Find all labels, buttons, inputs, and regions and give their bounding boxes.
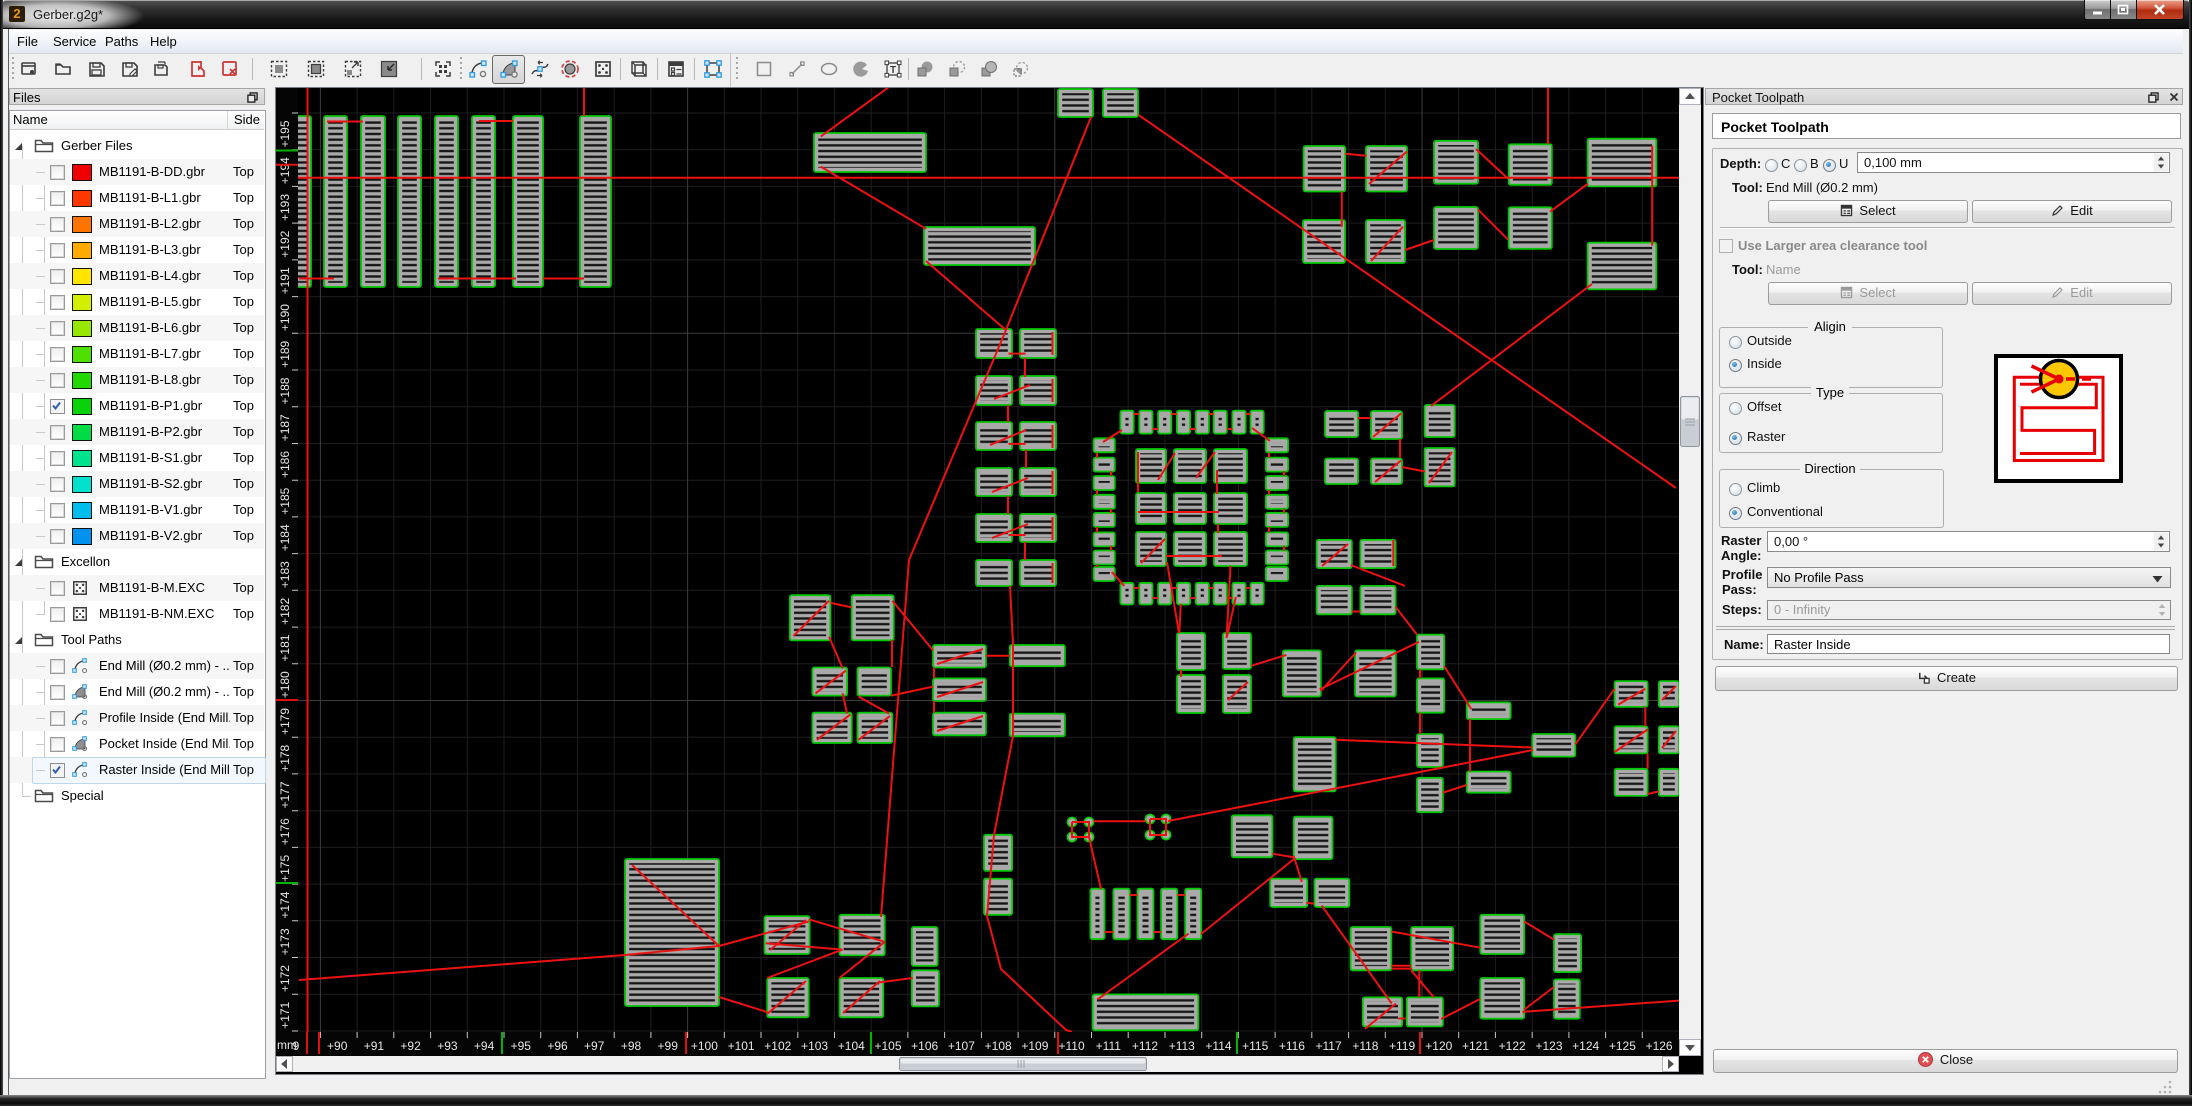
- svg-text:+112: +112: [1132, 1039, 1158, 1053]
- svg-text:+171: +171: [278, 1001, 292, 1028]
- svg-text:+190: +190: [278, 304, 292, 331]
- svg-text:+97: +97: [584, 1039, 605, 1053]
- svg-text:+176: +176: [278, 818, 292, 845]
- svg-text:+94: +94: [474, 1039, 495, 1053]
- svg-text:+105: +105: [874, 1039, 901, 1053]
- svg-text:+116: +116: [1279, 1039, 1305, 1053]
- svg-text:+106: +106: [911, 1039, 938, 1053]
- svg-text:+120: +120: [1425, 1039, 1452, 1053]
- svg-text:+172: +172: [278, 965, 292, 992]
- svg-text:+193: +193: [278, 194, 292, 221]
- svg-text:+192: +192: [278, 230, 292, 257]
- svg-text:+90: +90: [327, 1039, 348, 1053]
- svg-text:+195: +195: [278, 120, 292, 147]
- svg-text:+93: +93: [437, 1039, 458, 1053]
- svg-text:+178: +178: [278, 744, 292, 771]
- svg-text:+177: +177: [278, 781, 292, 808]
- svg-text:+188: +188: [278, 377, 292, 404]
- svg-text:+121: +121: [1462, 1039, 1489, 1053]
- svg-text:+186: +186: [278, 451, 292, 478]
- svg-text:T: T: [890, 65, 896, 76]
- svg-text:+114: +114: [1205, 1039, 1231, 1053]
- svg-text:+184: +184: [278, 524, 292, 551]
- svg-text:+119: +119: [1389, 1039, 1415, 1053]
- svg-text:+117: +117: [1316, 1039, 1342, 1053]
- svg-text:mm: mm: [277, 1038, 297, 1052]
- svg-text:+181: +181: [278, 634, 292, 661]
- svg-text:+92: +92: [400, 1039, 421, 1053]
- svg-text:+111: +111: [1096, 1039, 1122, 1053]
- svg-text:+173: +173: [278, 928, 292, 955]
- svg-text:+100: +100: [691, 1039, 718, 1053]
- svg-text:+191: +191: [278, 267, 292, 294]
- svg-text:+126: +126: [1646, 1039, 1673, 1053]
- svg-text:+115: +115: [1242, 1039, 1268, 1053]
- svg-text:+103: +103: [801, 1039, 828, 1053]
- svg-text:+118: +118: [1352, 1039, 1378, 1053]
- svg-text:+104: +104: [838, 1039, 865, 1053]
- svg-text:+180: +180: [278, 671, 292, 698]
- svg-text:+187: +187: [278, 414, 292, 441]
- svg-text:+185: +185: [278, 487, 292, 514]
- svg-text:+113: +113: [1169, 1039, 1195, 1053]
- svg-text:+107: +107: [948, 1039, 975, 1053]
- svg-text:+194: +194: [278, 157, 292, 184]
- svg-text:+102: +102: [764, 1039, 791, 1053]
- svg-text:+91: +91: [364, 1039, 385, 1053]
- svg-text:+96: +96: [547, 1039, 568, 1053]
- svg-text:+124: +124: [1572, 1039, 1599, 1053]
- svg-text:+123: +123: [1535, 1039, 1562, 1053]
- svg-text:+110: +110: [1059, 1039, 1085, 1053]
- svg-text:+109: +109: [1021, 1039, 1048, 1053]
- svg-text:+189: +189: [278, 340, 292, 367]
- svg-text:+183: +183: [278, 561, 292, 588]
- svg-text:+95: +95: [511, 1039, 532, 1053]
- svg-text:+174: +174: [278, 891, 292, 918]
- svg-text:+182: +182: [278, 598, 292, 625]
- svg-text:+125: +125: [1609, 1039, 1636, 1053]
- svg-text:+108: +108: [985, 1039, 1012, 1053]
- svg-text:+99: +99: [658, 1039, 679, 1053]
- svg-text:+179: +179: [278, 708, 292, 735]
- svg-text:+101: +101: [728, 1039, 755, 1053]
- svg-text:+98: +98: [621, 1039, 642, 1053]
- svg-text:+175: +175: [278, 855, 292, 882]
- svg-text:+122: +122: [1499, 1039, 1526, 1053]
